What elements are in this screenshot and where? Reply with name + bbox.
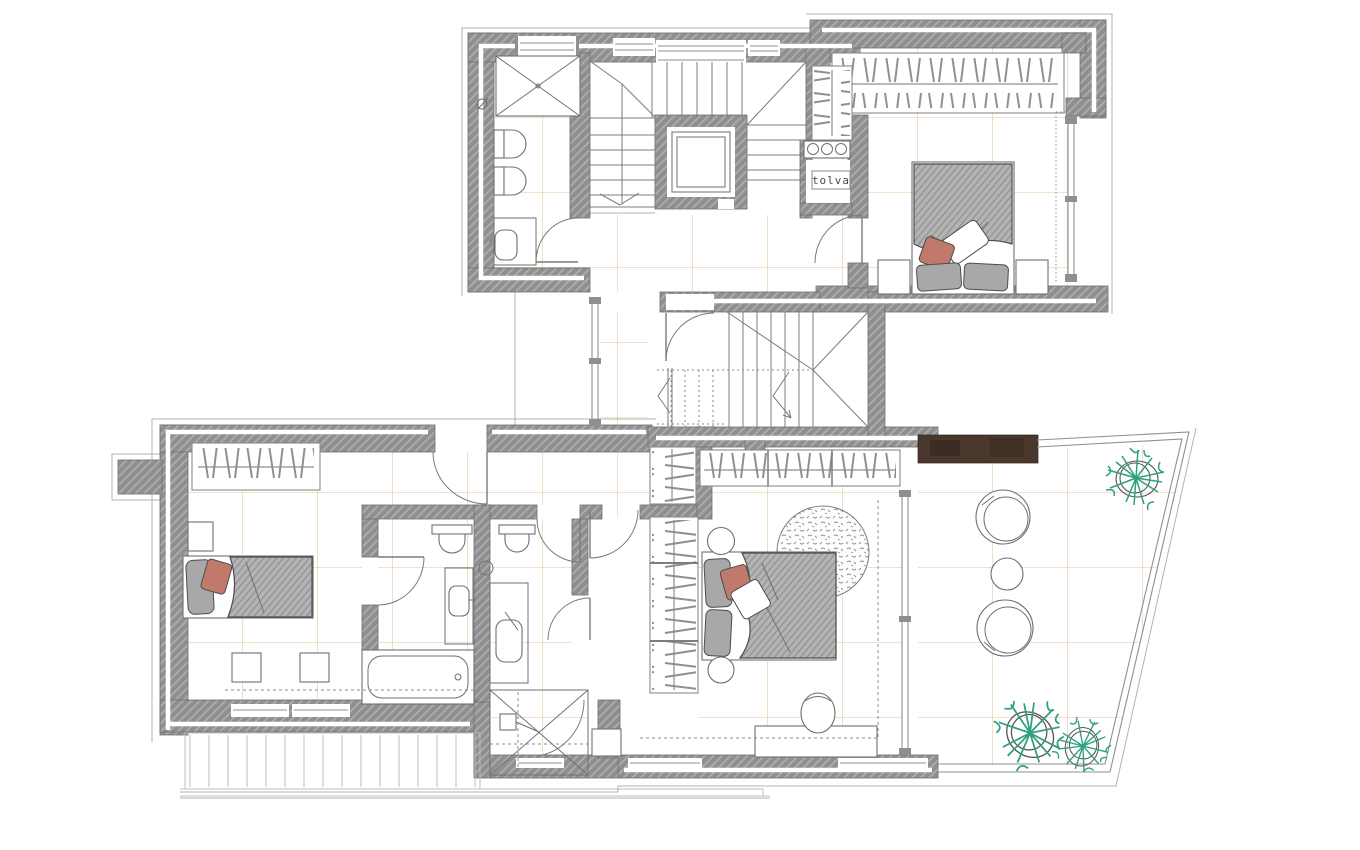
window: [613, 38, 655, 56]
lounge-chair: [977, 600, 1033, 656]
stool: [300, 653, 329, 682]
closet-bedroom-ne-left: [812, 66, 852, 140]
floor-terrace: [918, 444, 1186, 766]
wardrobe-master-left: [650, 517, 698, 693]
nightstand: [878, 260, 910, 294]
closet-bedroom-west: [192, 443, 320, 490]
window: [516, 758, 564, 768]
nightstand: [188, 522, 213, 551]
stool: [232, 653, 261, 682]
bed-bedroom-ne: [912, 162, 1014, 294]
side-table: [991, 558, 1023, 590]
bench-seat: [592, 729, 621, 756]
floor-plan-drawing: tolva: [0, 0, 1360, 850]
floor-plan-page: tolva: [0, 0, 1360, 850]
laundry-chute: tolva: [804, 141, 850, 203]
nightstand: [1016, 260, 1048, 294]
glazed-wall-corridor: [589, 297, 601, 426]
window: [748, 40, 780, 56]
floor-stair-mid: [655, 312, 868, 427]
toilet: [494, 167, 526, 195]
elevator: [667, 127, 735, 209]
bathtub: [362, 650, 474, 704]
closet-master-top: [700, 450, 900, 486]
window: [656, 40, 746, 63]
shower-upper: [496, 56, 580, 116]
bed-bedroom-master: [702, 552, 836, 660]
round-nightstand: [708, 528, 735, 555]
closet-entry-master: [650, 447, 696, 504]
desk-chair: [801, 693, 835, 733]
floor-bathroom-2: [490, 519, 572, 690]
wood-bench: [918, 435, 1038, 463]
toilet: [494, 130, 526, 158]
window: [515, 36, 579, 58]
chute-label: tolva: [812, 174, 850, 187]
round-nightstand: [708, 657, 734, 683]
bed-bedroom-west: [183, 556, 313, 618]
floor-corridor: [600, 312, 648, 443]
closet-bedroom-ne-top: [832, 53, 1064, 113]
lounge-chair: [976, 490, 1030, 544]
